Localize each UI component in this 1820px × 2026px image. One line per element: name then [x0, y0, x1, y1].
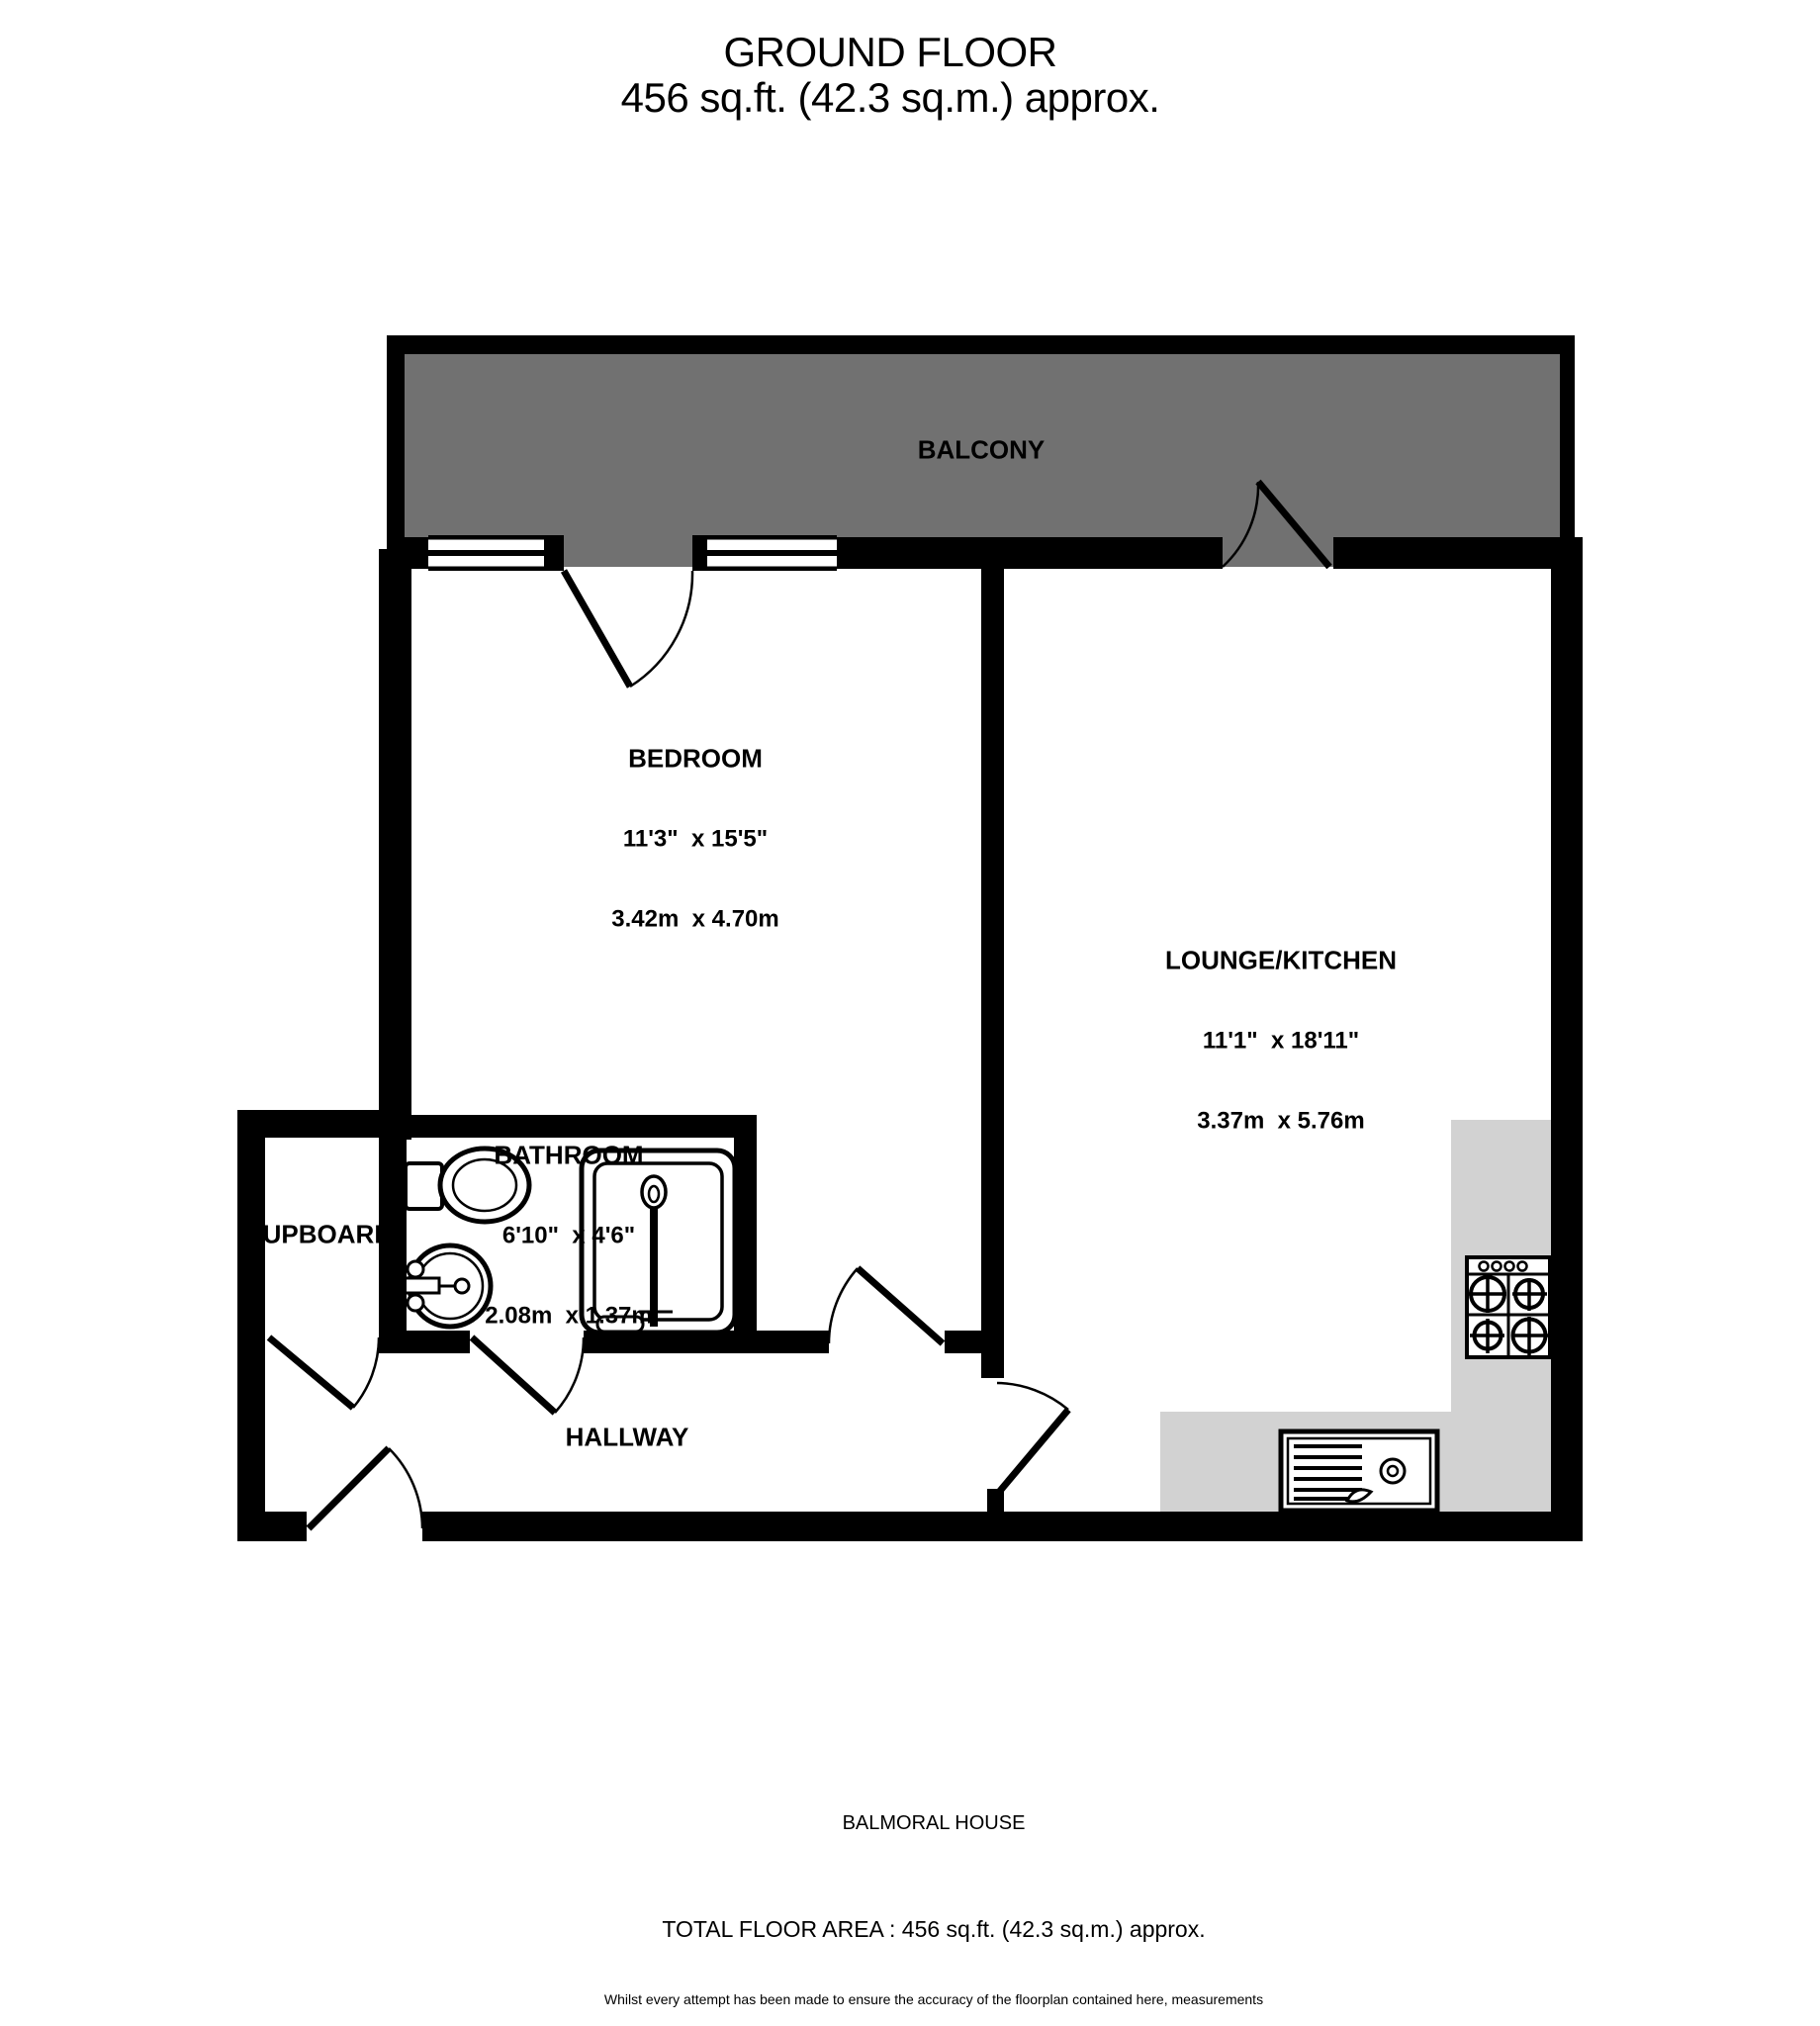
wall-hallway-top-1	[379, 1331, 470, 1353]
total-floor-area: TOTAL FLOOR AREA : 456 sq.ft. (42.3 sq.m…	[600, 1917, 1267, 1941]
wall-cupboard-left	[237, 1110, 265, 1541]
bedroom-dims-metric: 3.42m x 4.70m	[611, 906, 778, 933]
fixtures-layer	[0, 0, 1820, 2026]
cupboard-name: CUPBOARD	[244, 1220, 393, 1249]
wall-lounge-door-stub	[987, 1489, 1004, 1514]
wall-window-stub-1	[544, 535, 564, 571]
balcony-name: BALCONY	[918, 435, 1046, 465]
building-name: BALMORAL HOUSE	[600, 1812, 1267, 1834]
door-swing-icon-lounge	[995, 1383, 1068, 1497]
bathroom-dims-imperial: 6'10" x 4'6"	[485, 1223, 652, 1249]
door-swing-icon-bedroom-balcony	[564, 571, 692, 687]
door-swing-icon-lounge-balcony	[1223, 482, 1329, 567]
door-swing-icon-bedroom	[829, 1268, 943, 1343]
wall-hallway-top-2	[584, 1331, 755, 1353]
wall-balcony-left	[387, 335, 405, 549]
wall-cupboard-bathroom-divider	[379, 1138, 407, 1337]
lounge-kitchen-label: LOUNGE/KITCHEN 11'1" x 18'11" 3.37m x 5.…	[1165, 894, 1397, 1188]
window-icon-bedroom-left	[428, 535, 544, 571]
hallway-label: HALLWAY	[566, 1425, 689, 1451]
wall-bathroom-right	[734, 1115, 757, 1353]
wall-window-stub-2	[692, 535, 707, 571]
hob-icon	[1467, 1257, 1550, 1357]
page-title: GROUND FLOOR456 sq.ft. (42.3 sq.m.) appr…	[621, 30, 1160, 121]
lounge-kitchen-dims-metric: 3.37m x 5.76m	[1165, 1108, 1397, 1135]
lounge-kitchen-name: LOUNGE/KITCHEN	[1165, 948, 1397, 974]
balcony-label: BALCONY	[918, 437, 1046, 464]
window-icon-bedroom-right	[707, 535, 837, 571]
wall-balcony-bottom-3	[1333, 537, 1560, 569]
wall-lounge-right	[1551, 537, 1583, 1540]
bedroom-label: BEDROOM 11'3" x 15'5" 3.42m x 4.70m	[611, 692, 778, 986]
door-swing-icon-entrance	[309, 1448, 422, 1528]
basin-icon	[402, 1245, 491, 1327]
lounge-kitchen-dims-imperial: 11'1" x 18'11"	[1165, 1028, 1397, 1055]
wall-bottom-left	[237, 1512, 307, 1541]
bedroom-dims-imperial: 11'3" x 15'5"	[611, 826, 778, 853]
wall-bottom-right	[422, 1512, 1583, 1541]
wall-bedroom-bottom	[379, 1115, 757, 1138]
hallway-name: HALLWAY	[566, 1423, 689, 1452]
wall-top	[387, 335, 1575, 354]
wall-hallway-top-3	[755, 1331, 829, 1353]
door-swing-icon-cupboard	[269, 1337, 379, 1408]
wall-balcony-right	[1560, 335, 1575, 569]
bathroom-name: BATHROOM	[485, 1143, 652, 1169]
floorplan-canvas: GROUND FLOOR456 sq.ft. (42.3 sq.m.) appr…	[0, 0, 1820, 2026]
wall-bedroom-left	[379, 549, 411, 1140]
title-line2: 456 sq.ft. (42.3 sq.m.) approx.	[621, 74, 1160, 121]
title-line1: GROUND FLOOR	[723, 29, 1056, 75]
footer: BALMORAL HOUSE TOTAL FLOOR AREA : 456 sq…	[600, 1777, 1267, 2026]
wall-balcony-bottom-1	[387, 537, 428, 569]
wall-hallway-top-4	[945, 1331, 1004, 1353]
kitchen-sink-icon	[1281, 1431, 1437, 1511]
cupboard-label: CUPBOARD	[244, 1222, 393, 1248]
wall-balcony-bottom-2	[837, 537, 1223, 569]
wall-bedroom-lounge-divider	[981, 552, 1004, 1378]
bathroom-dims-metric: 2.08m x 1.37m	[485, 1303, 652, 1330]
bedroom-name: BEDROOM	[611, 746, 778, 773]
disclaimer-line: Whilst every attempt has been made to en…	[600, 1990, 1267, 2009]
